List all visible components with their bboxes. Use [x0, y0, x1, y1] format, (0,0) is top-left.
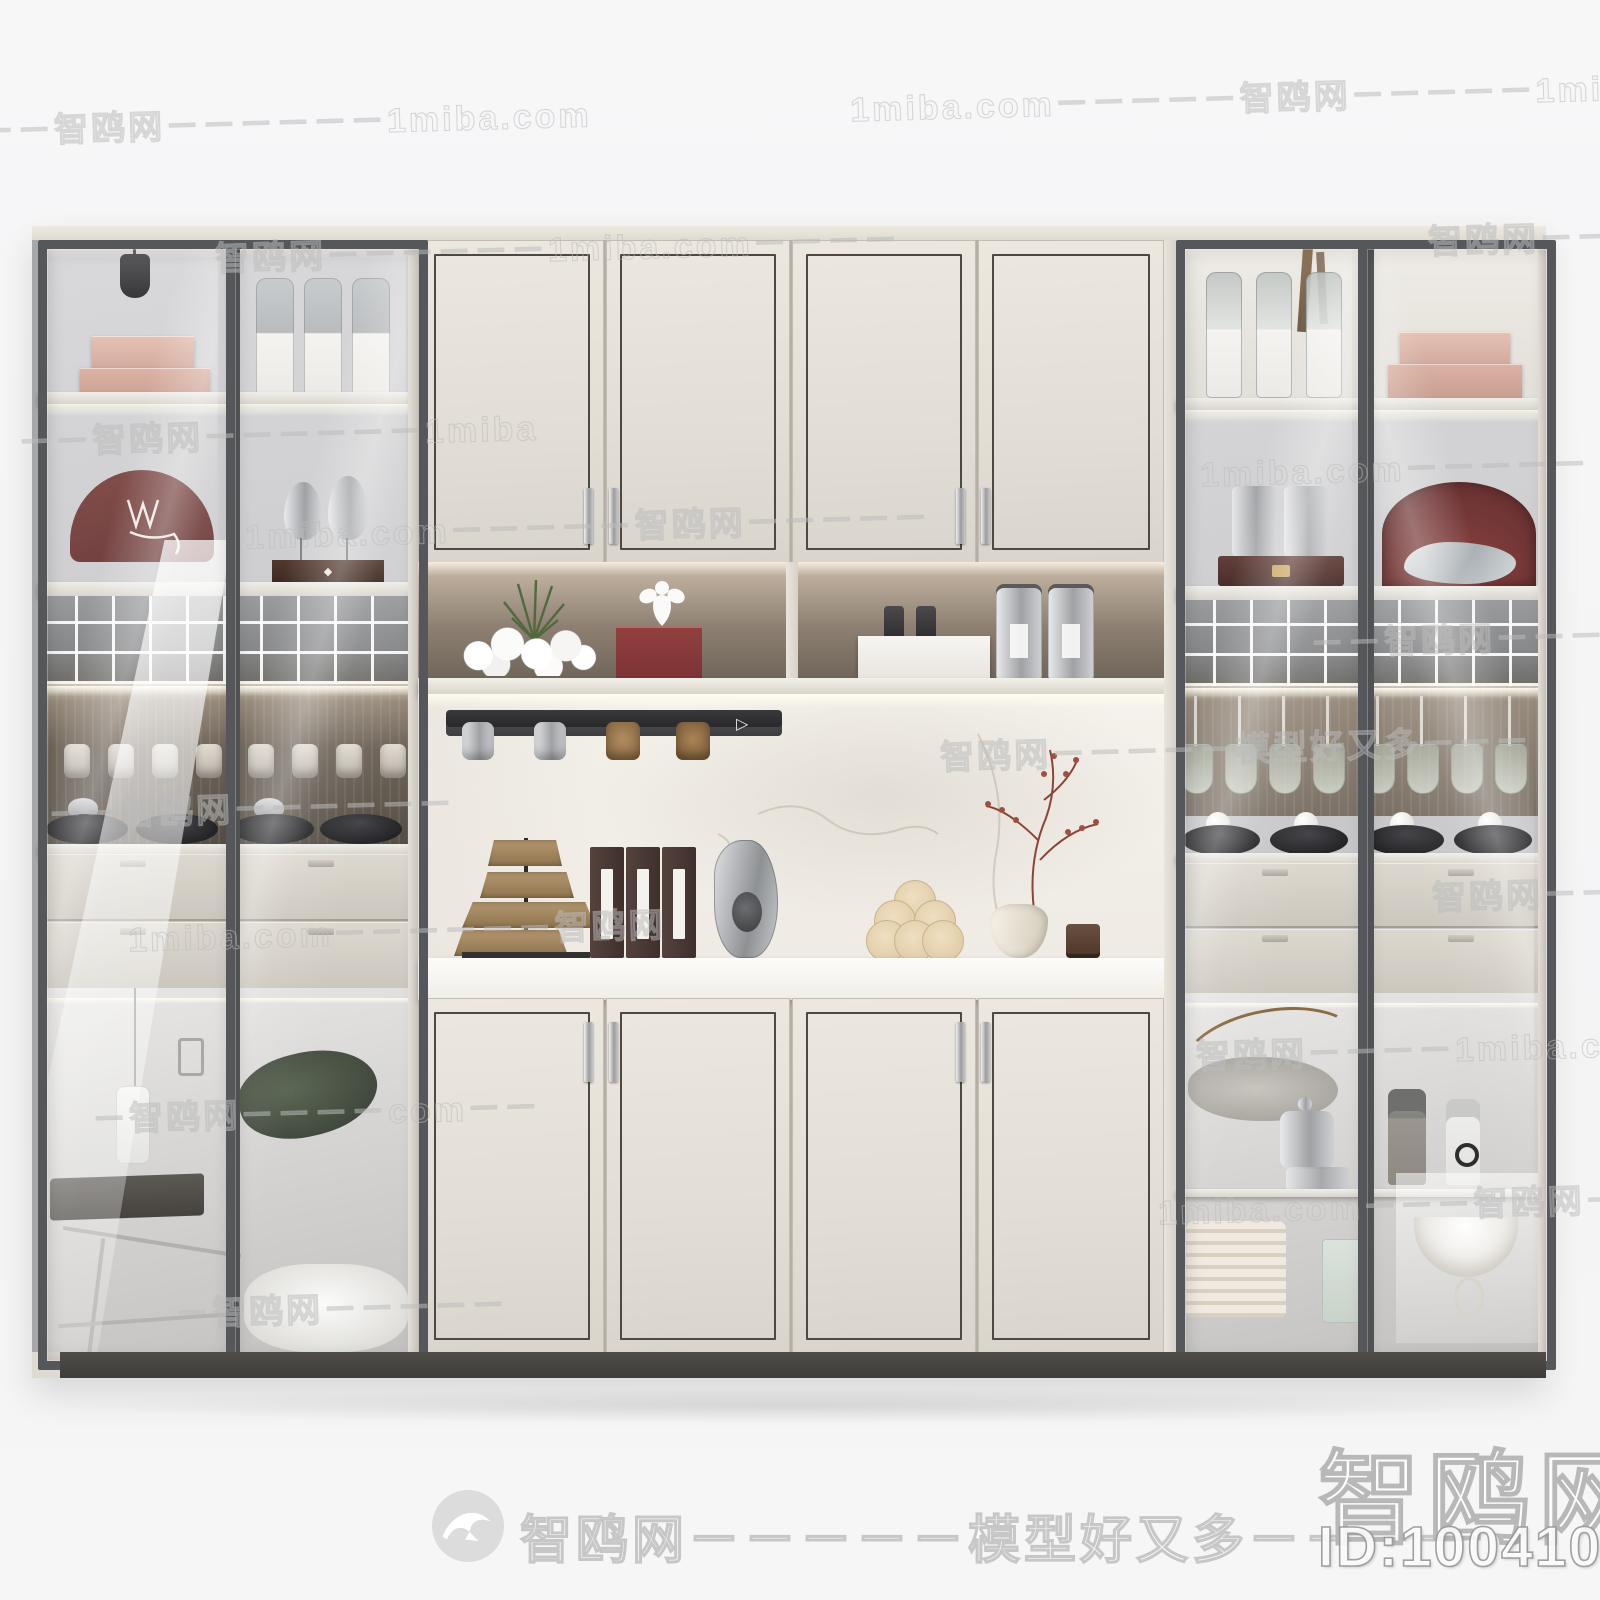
- door-inset-line: [992, 254, 1150, 550]
- rock-sculpture: [452, 618, 598, 676]
- tea-canister: [996, 584, 1042, 680]
- floor-shadow: [40, 1388, 1540, 1424]
- door-handle: [981, 488, 990, 544]
- play-icon: ▷: [736, 714, 748, 734]
- cabinet-plinth: [60, 1352, 1546, 1378]
- rail-cup: [606, 722, 640, 760]
- lower-door: [792, 998, 976, 1354]
- mini-bottle: [916, 606, 936, 638]
- storage-box: [858, 636, 990, 678]
- watermark-tile: －－智鸥网－－－－－－1miba.com: [0, 87, 592, 153]
- door-handle: [956, 1022, 965, 1082]
- door-handle: [609, 1022, 618, 1082]
- canister-label: [1062, 624, 1080, 658]
- canister-label: [1010, 624, 1028, 658]
- red-gift-box: [616, 626, 702, 678]
- niche-divider: [786, 562, 798, 680]
- tiered-stand-tier: [488, 840, 562, 866]
- upper-door: [978, 240, 1164, 564]
- book-file: [662, 847, 696, 958]
- tiered-stand-tier: [480, 872, 574, 898]
- model-id-watermark: ID:100410062: [1318, 1514, 1600, 1580]
- seagull-logo-icon: [432, 1490, 504, 1562]
- flower-sculpture: [634, 574, 690, 630]
- rail-cup: [676, 722, 710, 760]
- door-handle: [981, 1022, 990, 1082]
- tea-cake: [922, 920, 964, 962]
- niche-shelf: [418, 678, 1166, 694]
- gourd-vase: [714, 840, 778, 958]
- countertop: [418, 958, 1166, 1000]
- rail-cup: [534, 722, 566, 760]
- watermark-tile: 1miba.com－－－－－智鸥网－－－－－1miba.com: [849, 58, 1600, 132]
- vase-opening: [732, 892, 762, 932]
- shelf-light: [418, 694, 1166, 708]
- rail-cup: [462, 722, 494, 760]
- door-inset-line: [806, 1012, 962, 1340]
- door-handle: [584, 1022, 593, 1082]
- book-label: [673, 869, 685, 939]
- watermark-tile: －智鸥网－－－－－: [174, 1277, 508, 1335]
- mini-bottle: [884, 606, 904, 638]
- lower-door: [978, 998, 1164, 1354]
- play-glyph: ▷: [736, 716, 748, 733]
- mini-jar: [1066, 924, 1100, 958]
- cabinet-render: ◆: [0, 0, 1600, 1600]
- tea-canister: [1048, 584, 1094, 680]
- watermark-tile: 智鸥网－－: [1427, 209, 1600, 263]
- tea-cake-stack: [866, 880, 962, 958]
- door-inset-line: [992, 1012, 1150, 1340]
- watermark-tile: 智鸥网－－: [1431, 865, 1600, 919]
- lower-door: [606, 998, 790, 1354]
- door-handle: [956, 488, 965, 544]
- watermark-tile: －－智鸥网－－－－: [1309, 607, 1600, 665]
- door-inset-line: [620, 1012, 776, 1340]
